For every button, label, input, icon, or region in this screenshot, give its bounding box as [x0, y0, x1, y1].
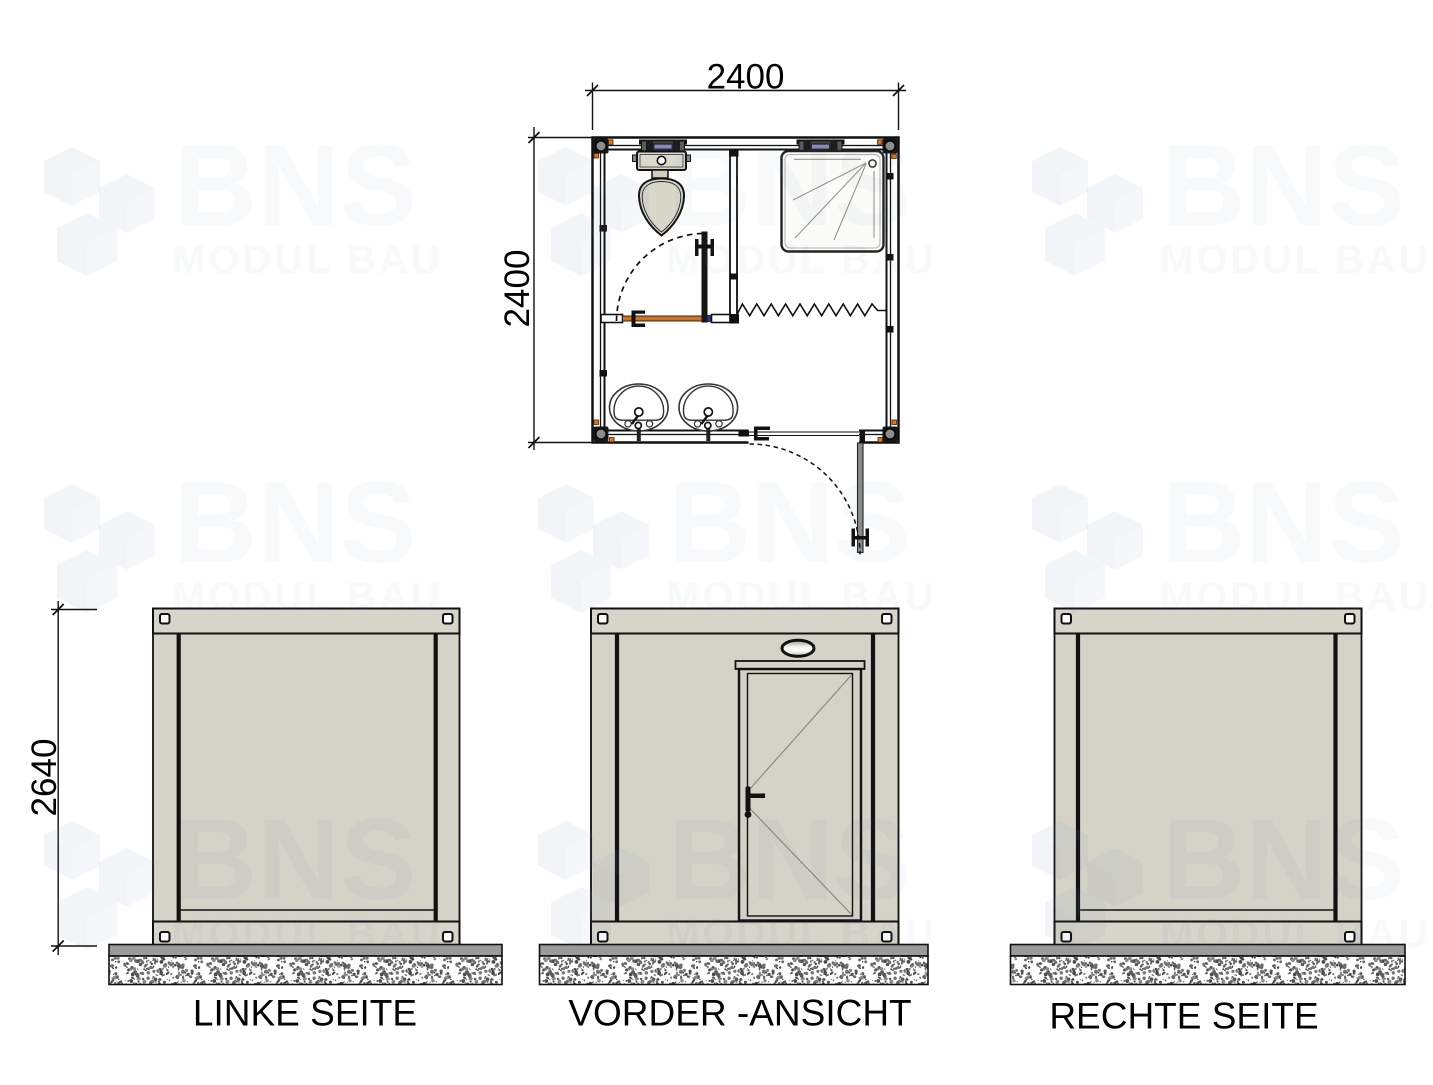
- svg-text:LINKE SEITE: LINKE SEITE: [193, 993, 417, 1034]
- svg-text:2640: 2640: [25, 739, 64, 817]
- svg-text:2400: 2400: [498, 250, 537, 328]
- svg-text:RECHTE SEITE: RECHTE SEITE: [1049, 996, 1318, 1037]
- svg-text:VORDER -ANSICHT: VORDER -ANSICHT: [568, 993, 911, 1034]
- svg-text:2400: 2400: [707, 58, 785, 97]
